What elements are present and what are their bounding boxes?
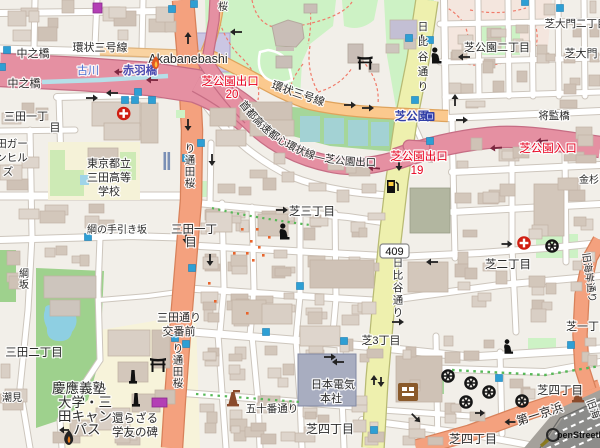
svg-text:通: 通: [185, 155, 196, 167]
svg-text:芝大門二丁目: 芝大門二丁目: [545, 17, 600, 30]
svg-text:り: り: [418, 81, 429, 93]
svg-text:芝二丁目: 芝二丁目: [485, 258, 531, 271]
svg-text:り: り: [185, 143, 196, 155]
svg-text:桜: 桜: [218, 0, 228, 13]
svg-text:三田二丁目: 三田二丁目: [5, 347, 63, 359]
svg-text:坂: 坂: [19, 279, 29, 291]
svg-text:日: 日: [393, 257, 404, 269]
svg-text:大学・三: 大学・三: [58, 395, 112, 410]
svg-text:日: 日: [418, 21, 429, 33]
svg-text:将監橋: 将監橋: [538, 109, 570, 122]
svg-text:ズ: ズ: [3, 165, 14, 178]
svg-text:Akabanebashi: Akabanebashi: [148, 52, 227, 66]
svg-text:綱: 綱: [19, 267, 29, 280]
svg-text:中之橋: 中之橋: [17, 46, 50, 60]
svg-text:比: 比: [418, 35, 429, 48]
svg-text:20: 20: [226, 89, 239, 101]
svg-text:金杉: 金杉: [579, 173, 599, 186]
svg-text:田: 田: [173, 366, 184, 378]
svg-text:通: 通: [173, 355, 184, 367]
svg-text:三田通り: 三田通り: [157, 311, 201, 324]
svg-text:慶應義塾: 慶應義塾: [52, 380, 106, 396]
svg-text:芝四丁目: 芝四丁目: [537, 384, 583, 397]
svg-text:通: 通: [418, 66, 429, 78]
svg-text:芝四丁目: 芝四丁目: [306, 421, 354, 436]
svg-text:比: 比: [393, 269, 404, 282]
svg-text:日本電気: 日本電気: [311, 377, 355, 391]
svg-text:19: 19: [411, 165, 424, 177]
svg-text:本社: 本社: [320, 391, 342, 405]
svg-text:谷: 谷: [418, 51, 429, 63]
svg-text:桜: 桜: [173, 377, 184, 390]
svg-text:学友の碑: 学友の碑: [112, 425, 158, 439]
svg-text:目: 目: [50, 122, 61, 134]
svg-text:芝3丁目: 芝3丁目: [361, 334, 400, 347]
svg-text:通: 通: [393, 295, 404, 307]
svg-text:三田一丁: 三田一丁: [4, 111, 48, 123]
svg-text:芝公園二丁目: 芝公園二丁目: [464, 41, 530, 54]
svg-text:三田一丁: 三田一丁: [171, 224, 217, 236]
svg-text:綱の手引き坂: 綱の手引き坂: [87, 223, 147, 236]
svg-text:芝三丁目: 芝三丁目: [289, 205, 335, 218]
svg-text:芝大門: 芝大門: [565, 46, 598, 60]
svg-text:芝公園出口: 芝公園出口: [390, 149, 448, 163]
svg-text:桜: 桜: [185, 177, 196, 190]
svg-text:五十番通り: 五十番通り: [246, 402, 299, 415]
svg-text:中之橋: 中之橋: [8, 76, 41, 90]
svg-text:交番前: 交番前: [163, 324, 196, 338]
svg-text:田: 田: [185, 166, 196, 178]
svg-text:芝公園: 芝公園: [395, 109, 430, 123]
svg-text:還らざる: 還らざる: [112, 411, 158, 425]
svg-text:谷: 谷: [393, 282, 404, 294]
svg-text:芝一丁目: 芝一丁目: [566, 320, 600, 333]
svg-text:古川: 古川: [77, 64, 99, 77]
svg-text:409: 409: [385, 246, 403, 258]
svg-text:penStreetMap: penStreetMap: [557, 430, 600, 440]
svg-text:ンヒル: ンヒル: [0, 152, 28, 164]
svg-text:学校: 学校: [98, 184, 120, 198]
svg-text:パス: パス: [74, 422, 101, 437]
svg-text:り: り: [393, 307, 404, 319]
svg-text:東京都立: 東京都立: [87, 156, 131, 170]
svg-text:芝四丁目: 芝四丁目: [449, 431, 497, 446]
svg-text:芝公園入口: 芝公園入口: [519, 142, 577, 155]
svg-text:田ガー: 田ガー: [0, 138, 28, 150]
svg-text:目: 目: [185, 237, 197, 249]
svg-text:り: り: [173, 343, 184, 355]
svg-text:潮見: 潮見: [2, 391, 22, 404]
svg-text:芝公園出口: 芝公園出口: [201, 74, 259, 88]
svg-text:環状三号線: 環状三号線: [73, 40, 128, 54]
svg-text:三田高等: 三田高等: [87, 170, 131, 184]
